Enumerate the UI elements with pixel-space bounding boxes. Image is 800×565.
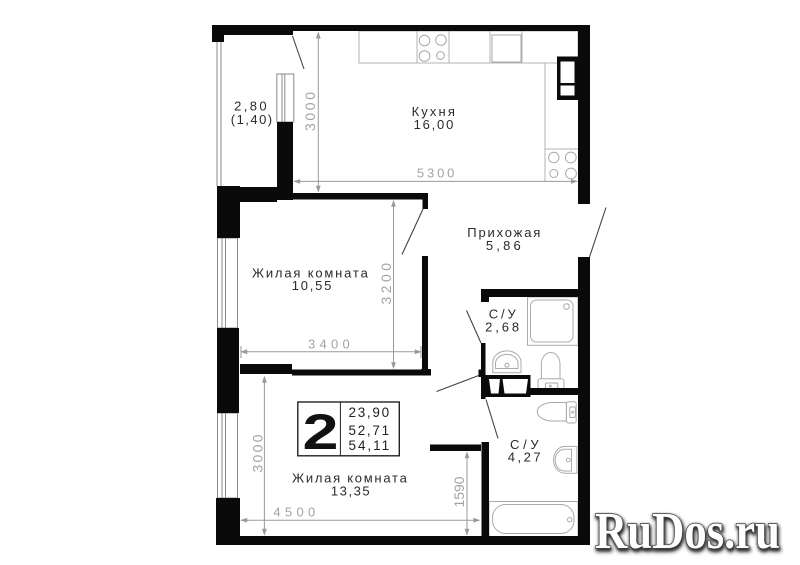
svg-text:2: 2 (303, 404, 339, 460)
svg-text:2,68: 2,68 (485, 320, 519, 335)
svg-text:54,11: 54,11 (349, 438, 390, 453)
svg-text:4,27: 4,27 (508, 450, 541, 465)
svg-text:10,55: 10,55 (292, 278, 332, 293)
svg-text:13,35: 13,35 (331, 484, 370, 499)
svg-text:1590: 1590 (451, 476, 467, 507)
svg-text:52,71: 52,71 (349, 423, 390, 438)
svg-text:RuDos.ru: RuDos.ru (595, 503, 780, 560)
svg-text:16,00: 16,00 (414, 117, 454, 132)
svg-text:(1,40): (1,40) (231, 112, 272, 127)
svg-text:5,86: 5,86 (486, 238, 521, 253)
svg-text:23,90: 23,90 (349, 405, 390, 420)
